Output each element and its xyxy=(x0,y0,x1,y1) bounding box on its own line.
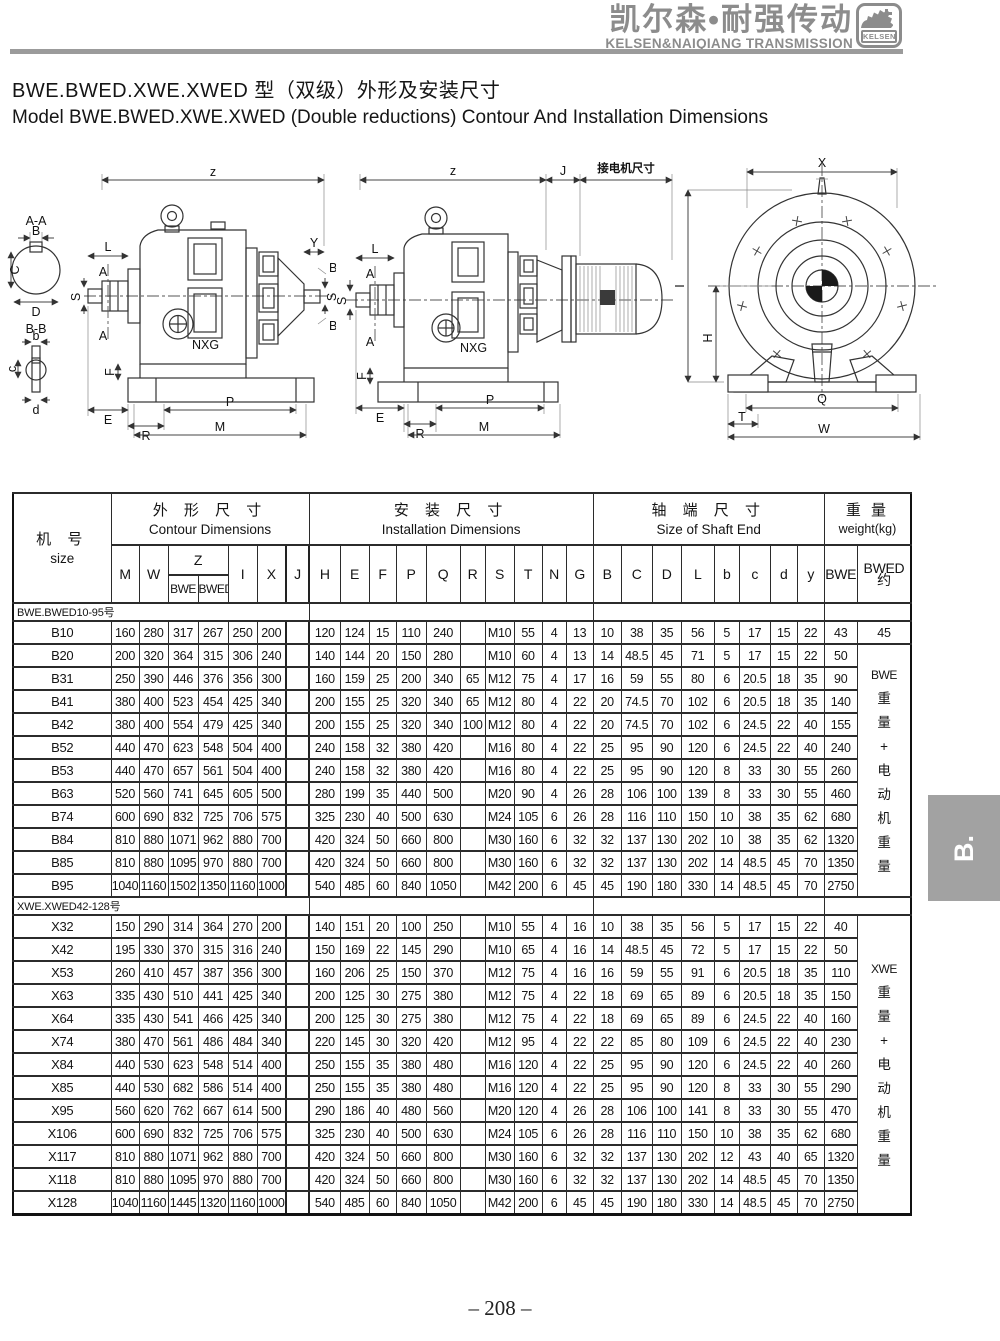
dim-label-b-key: B xyxy=(32,224,40,238)
cell: 102 xyxy=(681,713,714,736)
cell: 190 xyxy=(621,1191,652,1215)
cell: M30 xyxy=(485,851,514,874)
dim-label-f: F xyxy=(103,368,117,376)
cell: 6 xyxy=(714,690,739,713)
table-row: X118810880109597088070042032450660800M30… xyxy=(13,1168,911,1191)
dim-label-z: z xyxy=(210,165,216,179)
cell: 4 xyxy=(542,1030,566,1053)
col-header-l: L xyxy=(681,545,714,603)
dim-label-e: E xyxy=(104,413,112,427)
cell: M16 xyxy=(485,736,514,759)
cell: 5 xyxy=(714,915,739,938)
cell: 40 xyxy=(824,915,857,938)
cell: 22 xyxy=(566,690,593,713)
cell: 40 xyxy=(369,1122,396,1145)
cell: 150 xyxy=(396,644,426,667)
cell: 71 xyxy=(681,644,714,667)
table-row: X128104011601445132011601000540485608401… xyxy=(13,1191,911,1215)
cell: 145 xyxy=(340,1030,369,1053)
col-header-z: Z xyxy=(168,545,228,575)
cell: 22 xyxy=(770,736,797,759)
cell xyxy=(286,1168,309,1191)
cell: 520 xyxy=(111,782,139,805)
cell: 441 xyxy=(198,984,228,1007)
cell: 340 xyxy=(257,690,286,713)
cell: 623 xyxy=(168,1053,198,1076)
cell: 1320 xyxy=(824,1145,857,1168)
cell: 137 xyxy=(621,1168,652,1191)
cell: 320 xyxy=(396,713,426,736)
cell: 324 xyxy=(340,828,369,851)
cell: 530 xyxy=(139,1053,168,1076)
cell: 1445 xyxy=(168,1191,198,1215)
table-row: B5344047065756150440024015832380420M1680… xyxy=(13,759,911,782)
cell: 10 xyxy=(593,621,621,644)
cell: 22 xyxy=(566,736,593,759)
cell: 457 xyxy=(168,961,198,984)
cell: 20.5 xyxy=(739,667,770,690)
dim-label-t: T xyxy=(738,410,746,424)
cell: 1071 xyxy=(168,1145,198,1168)
row-size: X63 xyxy=(13,984,111,1007)
cell: 159 xyxy=(340,667,369,690)
row-size: B95 xyxy=(13,874,111,897)
motor-dim-note: 接电机尺寸 xyxy=(597,161,655,175)
cell: 22 xyxy=(566,1007,593,1030)
cell xyxy=(286,782,309,805)
cell: 230 xyxy=(824,1030,857,1053)
dim-label-l: L xyxy=(105,240,112,254)
side-view-diagram: A-A B C D B-B b c d z xyxy=(6,150,336,442)
row-size: X95 xyxy=(13,1099,111,1122)
cell: 13 xyxy=(566,644,593,667)
cell: M42 xyxy=(485,1191,514,1215)
cell: 680 xyxy=(824,1122,857,1145)
cell: 614 xyxy=(228,1099,257,1122)
cell: 880 xyxy=(139,851,168,874)
cell: 330 xyxy=(681,874,714,897)
cell: 340 xyxy=(426,667,460,690)
cell: 840 xyxy=(396,1191,426,1215)
section-side-tab[interactable]: B. xyxy=(928,795,1000,901)
cell: 137 xyxy=(621,851,652,874)
dim-label-p: P xyxy=(486,393,494,407)
cell: 4 xyxy=(542,938,566,961)
cell: 470 xyxy=(139,1030,168,1053)
cell: 500 xyxy=(257,782,286,805)
cell: 105 xyxy=(514,805,542,828)
cell: 69 xyxy=(621,1007,652,1030)
cell: M42 xyxy=(485,874,514,897)
cell: 26 xyxy=(566,1122,593,1145)
cell: 324 xyxy=(340,1145,369,1168)
cell xyxy=(286,1076,309,1099)
row-size: X84 xyxy=(13,1053,111,1076)
cell: 480 xyxy=(426,1076,460,1099)
cell: 380 xyxy=(396,736,426,759)
cell: 4 xyxy=(542,667,566,690)
catalog-page: 凯尔森•耐强传动 KELSEN&NAIQIANG TRANSMISSION KE… xyxy=(0,0,1000,1341)
cell: 8 xyxy=(714,1099,739,1122)
cell: 420 xyxy=(309,1168,340,1191)
cell: 30 xyxy=(770,782,797,805)
dim-label-l: L xyxy=(372,242,379,256)
cell: 290 xyxy=(824,1076,857,1099)
cell: 120 xyxy=(681,1053,714,1076)
cell: 160 xyxy=(111,621,139,644)
cell: 150 xyxy=(111,915,139,938)
cell: 500 xyxy=(396,1122,426,1145)
front-view-diagram: X I H Q xyxy=(672,146,972,444)
cell: 762 xyxy=(168,1099,198,1122)
cell: 20 xyxy=(369,915,396,938)
cell: 62 xyxy=(797,1122,824,1145)
cell: 160 xyxy=(309,961,340,984)
cell: 880 xyxy=(139,1145,168,1168)
cell: 26 xyxy=(566,1099,593,1122)
cell: 35 xyxy=(652,621,681,644)
cell: 330 xyxy=(139,938,168,961)
cell: 810 xyxy=(111,1145,139,1168)
cell: 110 xyxy=(652,805,681,828)
cell: 56 xyxy=(681,915,714,938)
cell: 38 xyxy=(739,1122,770,1145)
cell: 1320 xyxy=(198,1191,228,1215)
cell: 523 xyxy=(168,690,198,713)
cell: 59 xyxy=(621,961,652,984)
cell: 75 xyxy=(514,961,542,984)
cell: 38 xyxy=(621,621,652,644)
cell: 90 xyxy=(652,736,681,759)
cell: 151 xyxy=(340,915,369,938)
cell: 660 xyxy=(396,851,426,874)
cell: 30 xyxy=(369,1030,396,1053)
cell: 540 xyxy=(309,874,340,897)
cell: 50 xyxy=(369,851,396,874)
dim-label-q: Q xyxy=(817,392,827,406)
cell: 290 xyxy=(309,1099,340,1122)
cell xyxy=(460,759,485,782)
dim-label-b-right-bottom: B xyxy=(329,319,336,333)
cell: 200 xyxy=(111,644,139,667)
cell: 400 xyxy=(257,759,286,782)
table-row: B84810880107196288070042032450660800M301… xyxy=(13,828,911,851)
cell: 660 xyxy=(396,828,426,851)
cell: 410 xyxy=(139,961,168,984)
cell: 400 xyxy=(257,1053,286,1076)
dim-label-p: P xyxy=(226,395,234,409)
cell: 24.5 xyxy=(739,1030,770,1053)
col-header-r: R xyxy=(460,545,485,603)
col-header-m: M xyxy=(111,545,139,603)
row-size: B74 xyxy=(13,805,111,828)
cell: 320 xyxy=(396,690,426,713)
cell: 24.5 xyxy=(739,1007,770,1030)
cell xyxy=(460,1122,485,1145)
cell: 195 xyxy=(111,938,139,961)
cell: 1160 xyxy=(139,1191,168,1215)
cell: 74.5 xyxy=(621,713,652,736)
cell xyxy=(286,1145,309,1168)
cell: 30 xyxy=(770,1076,797,1099)
cell: 275 xyxy=(396,984,426,1007)
cell: 290 xyxy=(139,915,168,938)
cell: 510 xyxy=(168,984,198,1007)
cell xyxy=(286,874,309,897)
cell: 100 xyxy=(460,713,485,736)
cell: 660 xyxy=(396,1168,426,1191)
cell: 105 xyxy=(514,1122,542,1145)
cell: 15 xyxy=(369,621,396,644)
cell: 380 xyxy=(396,1076,426,1099)
cell: 140 xyxy=(824,690,857,713)
cell: 6 xyxy=(542,874,566,897)
cell: 316 xyxy=(228,938,257,961)
cell: 2750 xyxy=(824,874,857,897)
cell: 55 xyxy=(652,667,681,690)
cell: 810 xyxy=(111,828,139,851)
cell: 880 xyxy=(228,828,257,851)
cell: 18 xyxy=(593,984,621,1007)
cell: 17 xyxy=(739,915,770,938)
cell: 700 xyxy=(257,851,286,874)
gear-icon xyxy=(859,8,893,30)
cell xyxy=(460,1076,485,1099)
cell: 880 xyxy=(139,1168,168,1191)
row-size: B42 xyxy=(13,713,111,736)
cell: 575 xyxy=(257,805,286,828)
cell: 150 xyxy=(681,805,714,828)
cell: 4 xyxy=(542,713,566,736)
cell: 80 xyxy=(514,713,542,736)
cell xyxy=(460,1145,485,1168)
row-size: B10 xyxy=(13,621,111,644)
section-row: BWE.BWED10-95号 xyxy=(13,603,911,621)
cell: 202 xyxy=(681,828,714,851)
cell: 325 xyxy=(309,805,340,828)
cell xyxy=(286,828,309,851)
cell: 504 xyxy=(228,759,257,782)
cell: 250 xyxy=(426,915,460,938)
cell: M16 xyxy=(485,759,514,782)
cell: 370 xyxy=(168,938,198,961)
cell: 1071 xyxy=(168,828,198,851)
cell: 690 xyxy=(139,805,168,828)
cell: 160 xyxy=(514,1145,542,1168)
cell: 50 xyxy=(824,644,857,667)
row-size: B20 xyxy=(13,644,111,667)
cell: 554 xyxy=(168,713,198,736)
table-row: B951040116015021350116010005404856084010… xyxy=(13,874,911,897)
cell: 706 xyxy=(228,1122,257,1145)
cell: 45 xyxy=(593,1191,621,1215)
cell: 970 xyxy=(198,1168,228,1191)
cell: 70 xyxy=(797,874,824,897)
dim-label-a-bottom: A xyxy=(99,329,108,343)
cell: 356 xyxy=(228,667,257,690)
cell: 32 xyxy=(593,851,621,874)
cell: 387 xyxy=(198,961,228,984)
cell: 14 xyxy=(714,1168,739,1191)
col-header-s: S xyxy=(485,545,514,603)
row-size: B53 xyxy=(13,759,111,782)
cell: 320 xyxy=(396,1030,426,1053)
cell: 682 xyxy=(168,1076,198,1099)
cell: 18 xyxy=(593,1007,621,1030)
cell xyxy=(286,961,309,984)
col-header-x: X xyxy=(257,545,286,603)
cell: 40 xyxy=(797,736,824,759)
cell: 32 xyxy=(566,1168,593,1191)
cell xyxy=(460,1191,485,1215)
cell xyxy=(460,915,485,938)
cell: 48.5 xyxy=(739,1168,770,1191)
cell: 26 xyxy=(566,782,593,805)
cell: 380 xyxy=(396,1053,426,1076)
cell: 706 xyxy=(228,805,257,828)
cell xyxy=(460,874,485,897)
cell xyxy=(286,644,309,667)
cell: 95 xyxy=(621,1076,652,1099)
cell: 962 xyxy=(198,828,228,851)
cell: 120 xyxy=(681,736,714,759)
cell: 340 xyxy=(257,1030,286,1053)
cell: 55 xyxy=(797,1099,824,1122)
cell: M10 xyxy=(485,915,514,938)
cell: 1160 xyxy=(228,874,257,897)
cell: 4 xyxy=(542,736,566,759)
cell: 16 xyxy=(593,961,621,984)
cell: 55 xyxy=(797,782,824,805)
cell: 880 xyxy=(228,1145,257,1168)
cell: 1050 xyxy=(426,874,460,897)
cell: 630 xyxy=(426,805,460,828)
cell: 74.5 xyxy=(621,690,652,713)
table-row: B4238040055447942534020015525320340100M1… xyxy=(13,713,911,736)
nxg-label: NXG xyxy=(460,341,487,355)
cell: 22 xyxy=(797,644,824,667)
cell: 32 xyxy=(593,1168,621,1191)
cell: 65 xyxy=(514,938,542,961)
cell: 17 xyxy=(739,621,770,644)
cell: 33 xyxy=(739,1076,770,1099)
table-row: X6333543051044142534020012530275380M1275… xyxy=(13,984,911,1007)
cell: 600 xyxy=(111,805,139,828)
cell: 300 xyxy=(257,667,286,690)
cell: 35 xyxy=(797,690,824,713)
cell: 6 xyxy=(542,828,566,851)
cell: 22 xyxy=(797,938,824,961)
table-row: B6352056074164560550028019935440500M2090… xyxy=(13,782,911,805)
cell: 6 xyxy=(542,805,566,828)
brand-block: 凯尔森•耐强传动 KELSEN&NAIQIANG TRANSMISSION xyxy=(605,4,853,51)
cell: 22 xyxy=(770,1053,797,1076)
cell: 420 xyxy=(309,1145,340,1168)
cell: 125 xyxy=(340,984,369,1007)
cell xyxy=(286,1122,309,1145)
row-size: B52 xyxy=(13,736,111,759)
cell: 33 xyxy=(739,782,770,805)
cell: 4 xyxy=(542,782,566,805)
cell: 62 xyxy=(797,828,824,851)
cell: 200 xyxy=(514,874,542,897)
cell: 25 xyxy=(593,759,621,782)
cell: 144 xyxy=(340,644,369,667)
cell: 4 xyxy=(542,690,566,713)
cell: 70 xyxy=(797,1168,824,1191)
logo-wordmark: KELSEN xyxy=(861,30,897,43)
cell: M30 xyxy=(485,1145,514,1168)
cell: 106 xyxy=(621,1099,652,1122)
cell: M10 xyxy=(485,621,514,644)
cell: 85 xyxy=(621,1030,652,1053)
cell: 10 xyxy=(714,805,739,828)
cell: 6 xyxy=(542,851,566,874)
cell: 106 xyxy=(621,782,652,805)
table-row: B85810880109597088070042032450660800M301… xyxy=(13,851,911,874)
cell: 6 xyxy=(542,1145,566,1168)
cell: 1502 xyxy=(168,874,198,897)
cell: 150 xyxy=(824,984,857,1007)
cell: 139 xyxy=(681,782,714,805)
cell: 10 xyxy=(593,915,621,938)
cell: 95 xyxy=(621,759,652,782)
row-size: X85 xyxy=(13,1076,111,1099)
cell: 95 xyxy=(621,1053,652,1076)
cell: 40 xyxy=(770,1145,797,1168)
cell xyxy=(286,713,309,736)
cell: 270 xyxy=(228,915,257,938)
cell: 370 xyxy=(426,961,460,984)
cell: 206 xyxy=(340,961,369,984)
group-header-weight: 重 量weight(kg) xyxy=(824,493,911,545)
cell: 120 xyxy=(514,1076,542,1099)
cell: 158 xyxy=(340,759,369,782)
cell: 6 xyxy=(714,713,739,736)
cell: 202 xyxy=(681,1145,714,1168)
cell: 586 xyxy=(198,1076,228,1099)
cell: 400 xyxy=(139,690,168,713)
cell: 160 xyxy=(514,828,542,851)
cell: 430 xyxy=(139,984,168,1007)
cell: 840 xyxy=(396,874,426,897)
cell: M12 xyxy=(485,690,514,713)
cell: 20 xyxy=(593,713,621,736)
dim-label-x: X xyxy=(818,156,827,170)
cell: 832 xyxy=(168,805,198,828)
cell: 24.5 xyxy=(739,736,770,759)
cell: 620 xyxy=(139,1099,168,1122)
cell: 169 xyxy=(340,938,369,961)
cell: 657 xyxy=(168,759,198,782)
dim-label-b-small: b xyxy=(33,329,40,343)
cell: 22 xyxy=(369,938,396,961)
cell: 33 xyxy=(739,759,770,782)
cell: 18 xyxy=(770,690,797,713)
cell: 600 xyxy=(111,1122,139,1145)
cell: 110 xyxy=(396,621,426,644)
cell: 45 xyxy=(652,644,681,667)
cell: 575 xyxy=(257,1122,286,1145)
cell: 480 xyxy=(396,1099,426,1122)
cell: 220 xyxy=(309,1030,340,1053)
cell: 832 xyxy=(168,1122,198,1145)
cell: 560 xyxy=(426,1099,460,1122)
group-header-contour: 外 形 尺 寸Contour Dimensions xyxy=(111,493,309,545)
cell: 335 xyxy=(111,984,139,1007)
cell: 306 xyxy=(228,644,257,667)
cell: 4 xyxy=(542,1053,566,1076)
